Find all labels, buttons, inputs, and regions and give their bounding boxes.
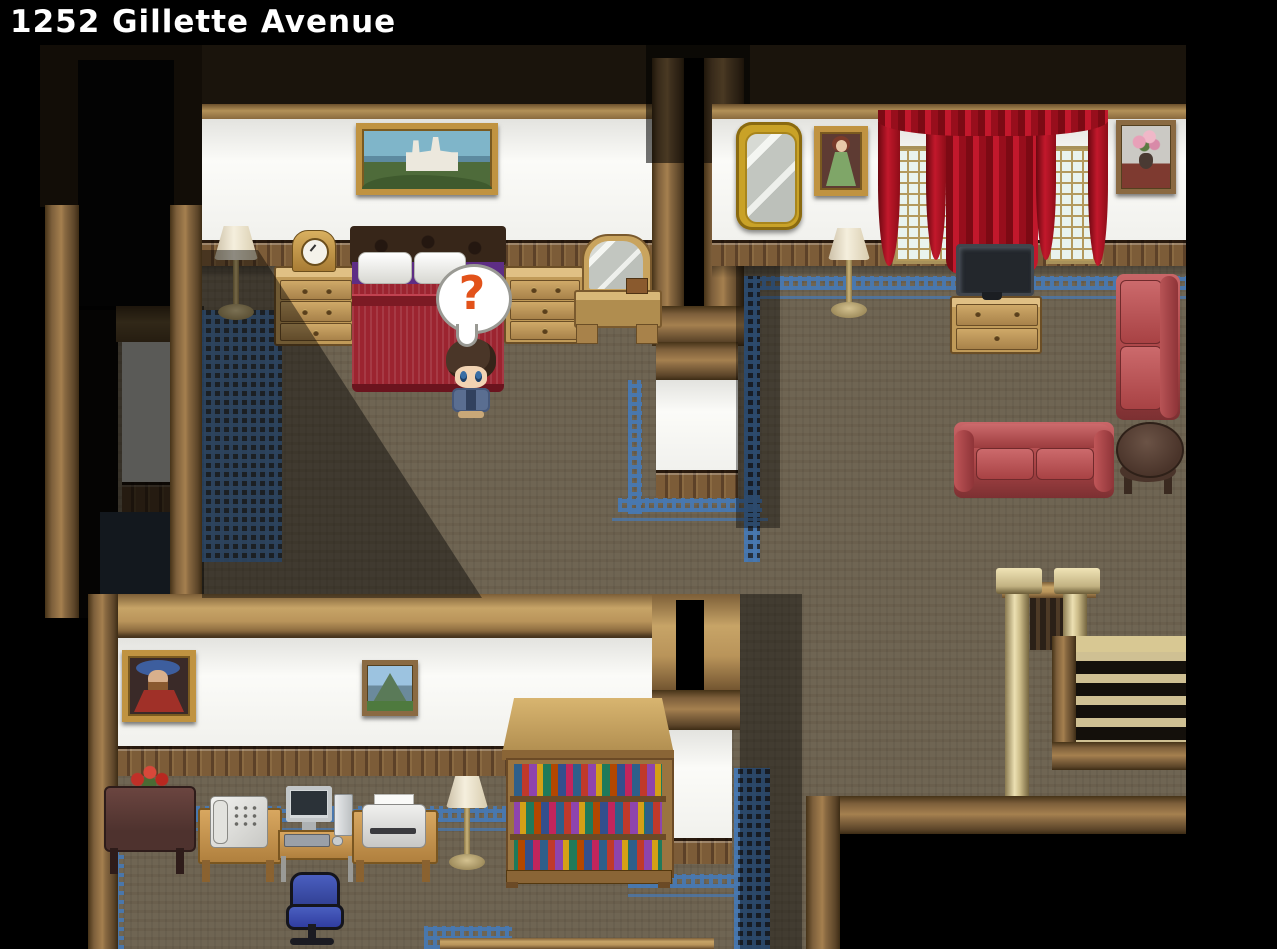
television	[956, 244, 1030, 302]
table-legs	[110, 848, 184, 874]
vanity-table	[574, 290, 662, 328]
computer-tower	[334, 794, 353, 836]
bottom-wall-cap	[440, 938, 714, 949]
round-side-table	[1116, 420, 1180, 498]
desk-legs	[202, 860, 274, 882]
lamp-stem	[464, 808, 470, 854]
lady-portrait-painting	[814, 126, 868, 196]
telephone-keypad	[232, 804, 260, 828]
bookshelf-row-3	[514, 840, 662, 870]
player-character[interactable]	[444, 338, 498, 418]
bookshelf-foot-right	[658, 882, 670, 888]
vanity-drawer-right	[636, 324, 658, 344]
divider-cap	[652, 306, 744, 346]
lady-face	[836, 140, 847, 152]
chair-base	[290, 938, 334, 945]
question-bubble: ?	[436, 264, 508, 348]
bottom-frame-left	[806, 796, 840, 949]
sofa-h-back	[956, 424, 1112, 448]
vanity-box	[626, 278, 648, 294]
column-wall	[656, 380, 738, 470]
carpet-border-column-left	[628, 380, 642, 514]
lady-dress	[826, 152, 856, 186]
table-top	[104, 786, 196, 852]
keyboard	[284, 834, 330, 847]
vanity-mirror	[574, 230, 658, 344]
ornate-mirror-glass	[745, 132, 797, 224]
banister-post-cap-left	[996, 568, 1042, 594]
flowers	[1129, 129, 1163, 155]
sofa-h-arm-right	[1094, 430, 1114, 492]
lamp-base	[449, 854, 485, 870]
bedroom-wall-trim	[202, 104, 660, 119]
telephone-handset	[213, 800, 228, 844]
bottom-void	[840, 834, 1186, 949]
lamp-base	[831, 302, 867, 318]
stair-frame-bottom	[1052, 742, 1186, 770]
monitor-stand	[302, 822, 316, 830]
bookshelf	[502, 698, 674, 888]
void-right-edge	[1186, 0, 1277, 949]
lamp-shade	[446, 776, 488, 808]
sofa-vertical	[1116, 274, 1180, 420]
question-glyph: ?	[436, 266, 508, 320]
flower-vase	[1139, 153, 1153, 169]
mountain-meadow	[367, 701, 413, 711]
desk-legs	[356, 860, 430, 882]
ornate-wall-mirror	[736, 122, 802, 230]
bookshelf-row-1	[514, 764, 662, 796]
column-cast-shadow	[736, 266, 780, 528]
office-door-gap[interactable]	[676, 600, 704, 690]
tv-screen	[956, 244, 1034, 296]
bedroom-dresser-right	[504, 266, 584, 344]
curtain-drape-far-right	[1088, 114, 1108, 266]
player-eye-right	[475, 371, 482, 382]
bubble-tail	[456, 324, 478, 347]
tv-cabinet	[950, 296, 1042, 354]
wall-pillar-left-outer	[45, 205, 79, 620]
vanity-drawer-left	[576, 324, 598, 344]
printer-desk	[352, 794, 434, 884]
bed-pillow-left	[358, 252, 412, 284]
bookshelf-base	[506, 870, 672, 884]
sofa-v-back	[1160, 276, 1178, 418]
mouse	[332, 836, 343, 846]
flower-still-life-painting	[1116, 120, 1176, 194]
lamp-shade	[828, 228, 870, 260]
game-viewport[interactable]: ?	[0, 0, 1277, 949]
telephone-desk	[198, 794, 278, 884]
player-shirt	[466, 390, 476, 410]
bookshelf-top	[502, 698, 674, 754]
closet-doorway-dark[interactable]	[78, 60, 174, 312]
printer-body	[362, 804, 426, 848]
location-title: 1252 Gillette Avenue	[10, 4, 396, 40]
mantel-clock	[292, 230, 334, 270]
staircase-down[interactable]	[1076, 652, 1186, 744]
bookshelf-row-2	[514, 802, 662, 834]
wall-pillar-left-inner	[170, 205, 202, 620]
office-floor-lamp	[444, 776, 490, 872]
lamp-stem	[846, 260, 852, 304]
column-cap	[656, 342, 738, 380]
mountain-painting	[362, 660, 418, 716]
stair-landing[interactable]	[1076, 636, 1186, 652]
office-wall-cap	[88, 594, 714, 638]
sofa-h-arm-left	[954, 430, 974, 492]
ceiling-band	[40, 45, 1186, 113]
tv-stand	[982, 292, 1002, 300]
monitor-screen	[291, 791, 327, 815]
computer-desk	[278, 786, 356, 884]
column-wainscot	[656, 470, 738, 498]
bookshelf-foot-left	[506, 882, 518, 888]
castle-painting-castle	[406, 137, 458, 171]
player-eye-left	[460, 371, 467, 382]
bottom-frame-top	[806, 796, 1186, 834]
hallway-cast-shadow	[740, 594, 802, 949]
printer-slot	[370, 828, 416, 834]
banister-post-cap-right	[1054, 568, 1100, 594]
banister-post-left	[1005, 594, 1029, 802]
living-floor-lamp	[826, 228, 872, 320]
player-feet	[458, 411, 484, 418]
man-cape	[134, 690, 184, 712]
castle-painting	[356, 123, 498, 195]
clock-face	[301, 238, 329, 266]
curtain-valance	[878, 110, 1108, 136]
flower-vase-table	[102, 758, 194, 880]
office-chair	[282, 872, 342, 949]
sofa-horizontal	[954, 422, 1114, 498]
castle-painting-trees	[362, 175, 492, 189]
void-bottom-left	[40, 618, 90, 949]
table-top	[1116, 422, 1184, 478]
man-portrait-painting	[122, 650, 196, 722]
carpet-border-office-bottom-line	[628, 894, 744, 897]
